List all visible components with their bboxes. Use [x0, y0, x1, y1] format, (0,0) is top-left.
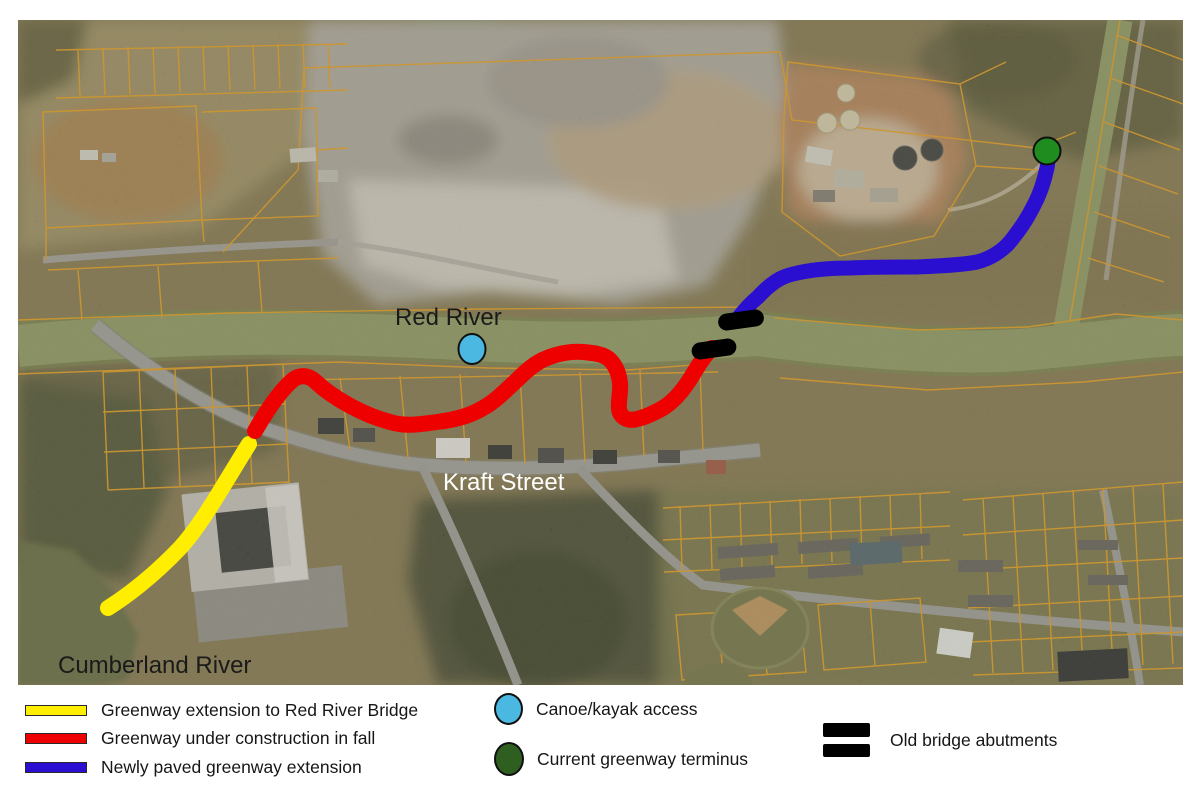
legend-item-greenway-terminus: Current greenway terminus: [494, 742, 748, 776]
red-river-label: Red River: [395, 304, 502, 331]
abutment-bar-top: [823, 723, 870, 737]
kraft-street-label: Kraft Street: [443, 469, 565, 496]
abutment-bar-bottom: [823, 744, 870, 757]
yellow-line-swatch: [25, 705, 87, 716]
legend-item-yellow-route: Greenway extension to Red River Bridge: [25, 700, 418, 721]
greenway-map-page: { "map": { "labels": { "red_river": "Red…: [0, 0, 1200, 800]
map-container: Red River Kraft Street Cumberland River: [18, 20, 1183, 685]
legend-label: Current greenway terminus: [537, 749, 748, 770]
legend-item-red-route: Greenway under construction in fall: [25, 728, 375, 749]
terminus-swatch: [494, 742, 524, 776]
canoe-access-marker: [459, 334, 486, 364]
red-line-swatch: [25, 733, 87, 744]
legend-label: Greenway extension to Red River Bridge: [101, 700, 418, 721]
legend-item-canoe-access: Canoe/kayak access: [494, 693, 697, 725]
legend-label: Canoe/kayak access: [536, 699, 697, 720]
blue-line-swatch: [25, 762, 87, 773]
canoe-access-swatch: [494, 693, 523, 725]
legend-label: Newly paved greenway extension: [101, 757, 362, 778]
legend-label: Old bridge abutments: [890, 730, 1057, 751]
cumberland-river-label: Cumberland River: [58, 652, 251, 679]
legend-item-blue-route: Newly paved greenway extension: [25, 757, 362, 778]
legend-item-bridge-abutments: Old bridge abutments: [823, 723, 1057, 757]
legend-label: Greenway under construction in fall: [101, 728, 375, 749]
abutment-swatch: [823, 723, 870, 757]
greenway-terminus-marker: [1034, 138, 1061, 165]
aerial-imagery: Red River Kraft Street Cumberland River: [18, 20, 1183, 685]
